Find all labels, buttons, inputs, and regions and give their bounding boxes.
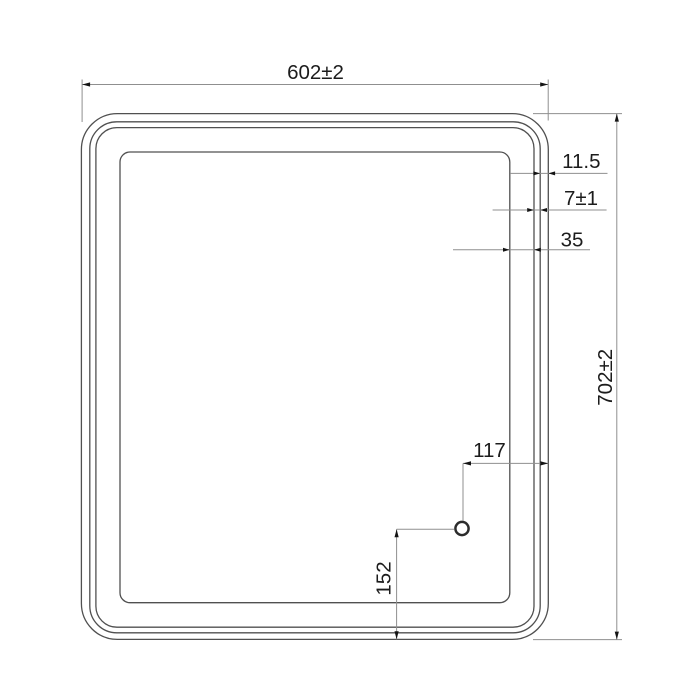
- svg-text:152: 152: [372, 561, 395, 595]
- svg-text:35: 35: [561, 229, 584, 252]
- svg-text:702±2: 702±2: [594, 349, 617, 406]
- svg-text:11.5: 11.5: [562, 150, 600, 173]
- svg-text:7±1: 7±1: [564, 187, 598, 210]
- svg-text:602±2: 602±2: [287, 61, 344, 84]
- svg-text:117: 117: [473, 439, 506, 462]
